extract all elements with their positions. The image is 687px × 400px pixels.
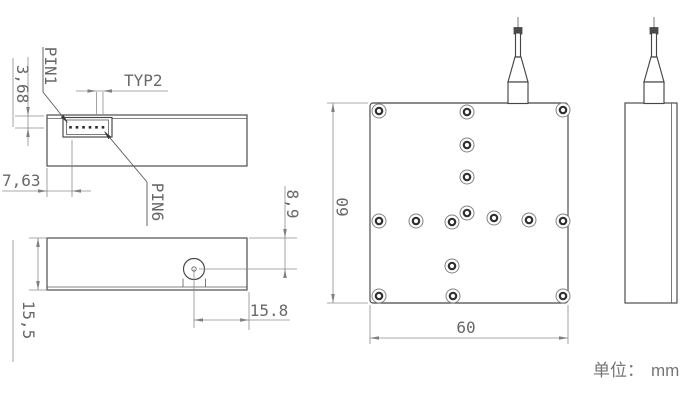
dim-body-width-text: 60	[456, 318, 475, 337]
dim-body-depth: 60	[327, 103, 368, 303]
screw-hole-inner	[376, 293, 382, 299]
screw-hole-inner	[491, 215, 497, 221]
module-body-outline-2	[47, 238, 247, 290]
connector-barrel	[508, 82, 528, 104]
top-view: 60 60	[327, 17, 570, 344]
mechanical-drawing-page: PIN1 PIN6 TYP2 3,68	[0, 0, 687, 400]
side-body-outline	[625, 103, 677, 303]
dim-body-width: 60	[370, 305, 568, 344]
dim-fiber-axis-top-text: 8,9	[283, 190, 302, 219]
dim-pin-pitch: TYP2	[76, 71, 168, 115]
dim-pin-row-offset: 3,68	[13, 57, 44, 146]
dim-fiber-axis-top: 8,9	[199, 186, 302, 278]
strain-relief-cone	[508, 57, 528, 82]
screw-hole-group	[372, 103, 570, 303]
pin6-leader-line	[105, 132, 147, 226]
screw-hole-inner	[449, 219, 455, 225]
dim-fiber-axis-right: 15.8	[194, 269, 290, 330]
ferrule-tube	[516, 33, 521, 57]
screw-hole-inner	[560, 218, 566, 224]
screw-hole-inner	[376, 108, 382, 114]
screw-hole-inner	[376, 218, 382, 224]
dim-body-depth-text: 60	[333, 197, 352, 216]
pin1-label: PIN1	[41, 47, 60, 86]
screw-hole-inner	[526, 217, 532, 223]
side-view-connector: PIN1 PIN6 TYP2 3,68	[2, 47, 247, 226]
screw-hole-inner	[449, 263, 455, 269]
screw-hole-inner	[450, 293, 456, 299]
screw-hole-inner	[413, 218, 419, 224]
dim-body-height-text: 15,5	[19, 301, 38, 340]
fiber-pigtail-side	[644, 17, 664, 104]
dim-pin1-offset-text: 7,63	[2, 171, 41, 190]
screw-hole-inner	[560, 107, 566, 113]
plan-body-outline	[370, 103, 568, 303]
screw-hole-inner	[464, 174, 470, 180]
dim-pin-pitch-text: TYP2	[124, 71, 163, 90]
screw-hole-inner	[464, 142, 470, 148]
ferrule-tube-2	[652, 33, 657, 57]
screw-hole-inner	[464, 109, 470, 115]
dim-body-height: 15,5	[13, 238, 46, 362]
right-side-view	[625, 17, 677, 303]
strain-relief-cone-2	[644, 57, 664, 82]
pin6-label: PIN6	[148, 183, 167, 222]
dim-pin-row-offset-text: 3,68	[13, 65, 32, 104]
dim-fiber-axis-right-text: 15.8	[250, 301, 289, 320]
screw-hole-inner	[464, 210, 470, 216]
drawing-canvas: PIN1 PIN6 TYP2 3,68	[0, 0, 687, 400]
fiber-pigtail-plan	[508, 17, 528, 104]
connector-barrel-2	[644, 82, 664, 104]
unit-note-label: 单位：	[593, 361, 644, 380]
unit-note-value: mm	[651, 361, 679, 380]
screw-hole-inner	[560, 293, 566, 299]
